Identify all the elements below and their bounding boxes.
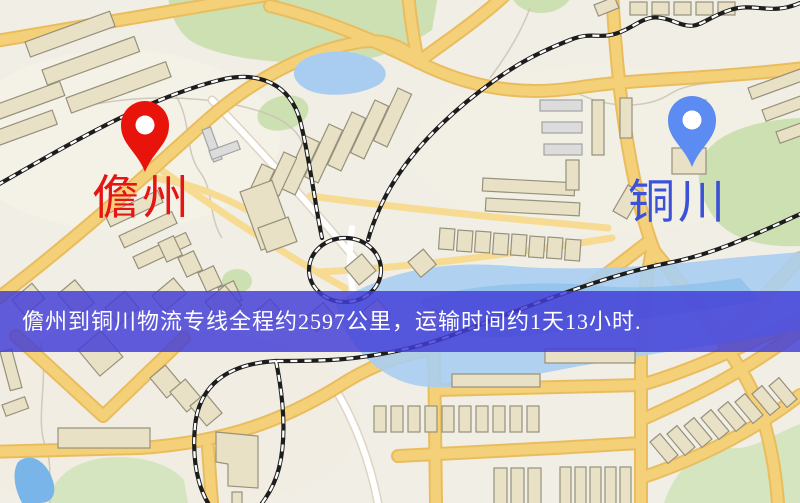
destination-city-label: 铜川	[628, 180, 728, 227]
origin-city-label: 儋州	[92, 176, 192, 223]
route-info-text: 儋州到铜川物流专线全程约2597公里，运输时间约1天13小时.	[22, 309, 642, 334]
logistics-route-map: 儋州 铜川 儋州到铜川物流专线全程约2597公里，运输时间约1天13小时.	[0, 0, 800, 503]
map-background	[0, 0, 800, 503]
route-info-banner: 儋州到铜川物流专线全程约2597公里，运输时间约1天13小时.	[0, 291, 800, 352]
origin-pin-icon	[117, 96, 173, 172]
destination-pin-icon	[664, 91, 720, 167]
origin-pin	[117, 96, 173, 172]
destination-pin	[664, 91, 720, 167]
